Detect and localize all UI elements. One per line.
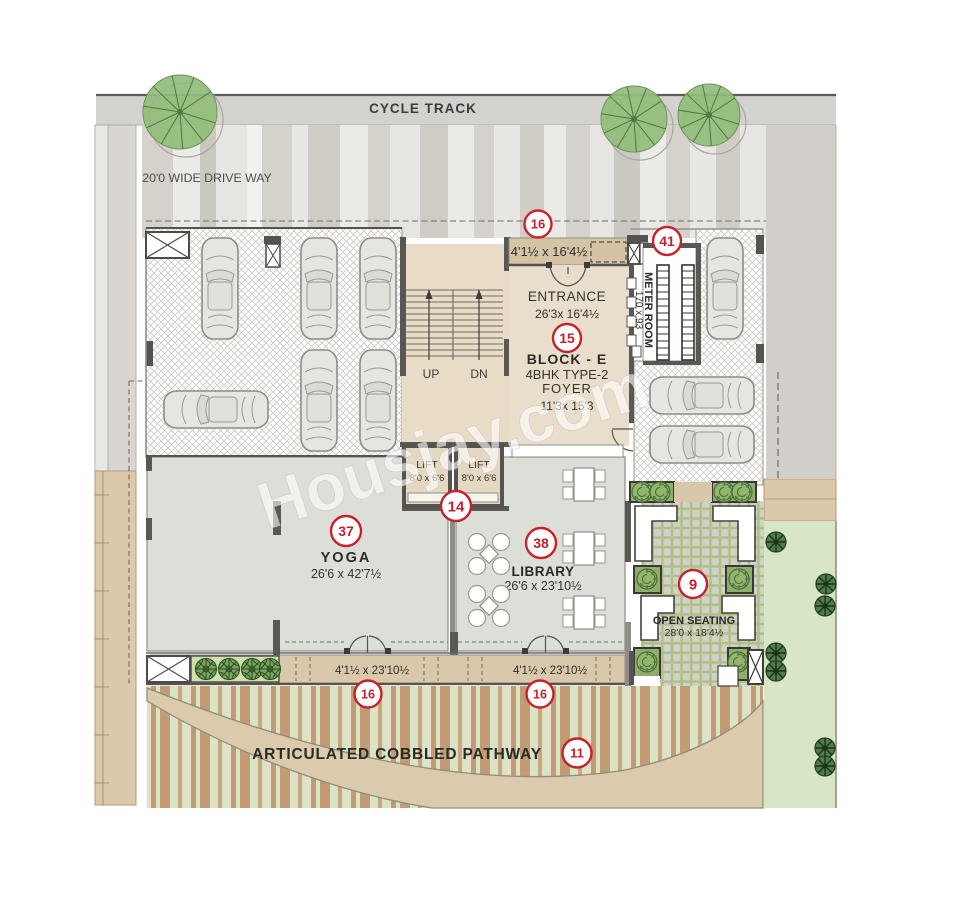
svg-text:YOGA: YOGA (321, 550, 372, 566)
svg-text:16: 16 (531, 217, 545, 232)
svg-text:20'0 WIDE DRIVE WAY: 20'0 WIDE DRIVE WAY (142, 171, 271, 185)
svg-text:38: 38 (533, 535, 549, 551)
svg-text:170 x 93: 170 x 93 (633, 291, 644, 330)
svg-text:ENTRANCE: ENTRANCE (528, 289, 606, 304)
svg-text:26'6 x 23'10½: 26'6 x 23'10½ (504, 579, 582, 593)
svg-text:14: 14 (448, 498, 465, 515)
svg-text:4'1½ x 23'10½: 4'1½ x 23'10½ (513, 665, 587, 677)
svg-text:CYCLE TRACK: CYCLE TRACK (369, 101, 477, 116)
svg-text:OPEN SEATING: OPEN SEATING (653, 615, 735, 627)
svg-text:16: 16 (533, 688, 547, 702)
svg-text:37: 37 (338, 523, 354, 539)
svg-text:41: 41 (659, 233, 675, 249)
svg-text:15: 15 (559, 330, 575, 346)
svg-text:9: 9 (689, 576, 697, 593)
svg-text:4'1½ x 23'10½: 4'1½ x 23'10½ (335, 665, 409, 677)
svg-text:11: 11 (570, 746, 584, 761)
svg-text:16: 16 (361, 688, 375, 702)
svg-text:26'6 x 42'7½: 26'6 x 42'7½ (311, 567, 382, 581)
svg-text:UP: UP (423, 367, 440, 381)
svg-text:28'0 x 18'4½: 28'0 x 18'4½ (665, 627, 724, 639)
svg-text:DN: DN (470, 367, 487, 381)
svg-text:ARTICULATED COBBLED PATHWAY: ARTICULATED COBBLED PATHWAY (252, 746, 542, 763)
svg-text:LIBRARY: LIBRARY (512, 564, 575, 579)
svg-text:26'3x 16'4½: 26'3x 16'4½ (535, 307, 599, 321)
svg-text:4'1½ x 16'4½: 4'1½ x 16'4½ (511, 244, 588, 259)
